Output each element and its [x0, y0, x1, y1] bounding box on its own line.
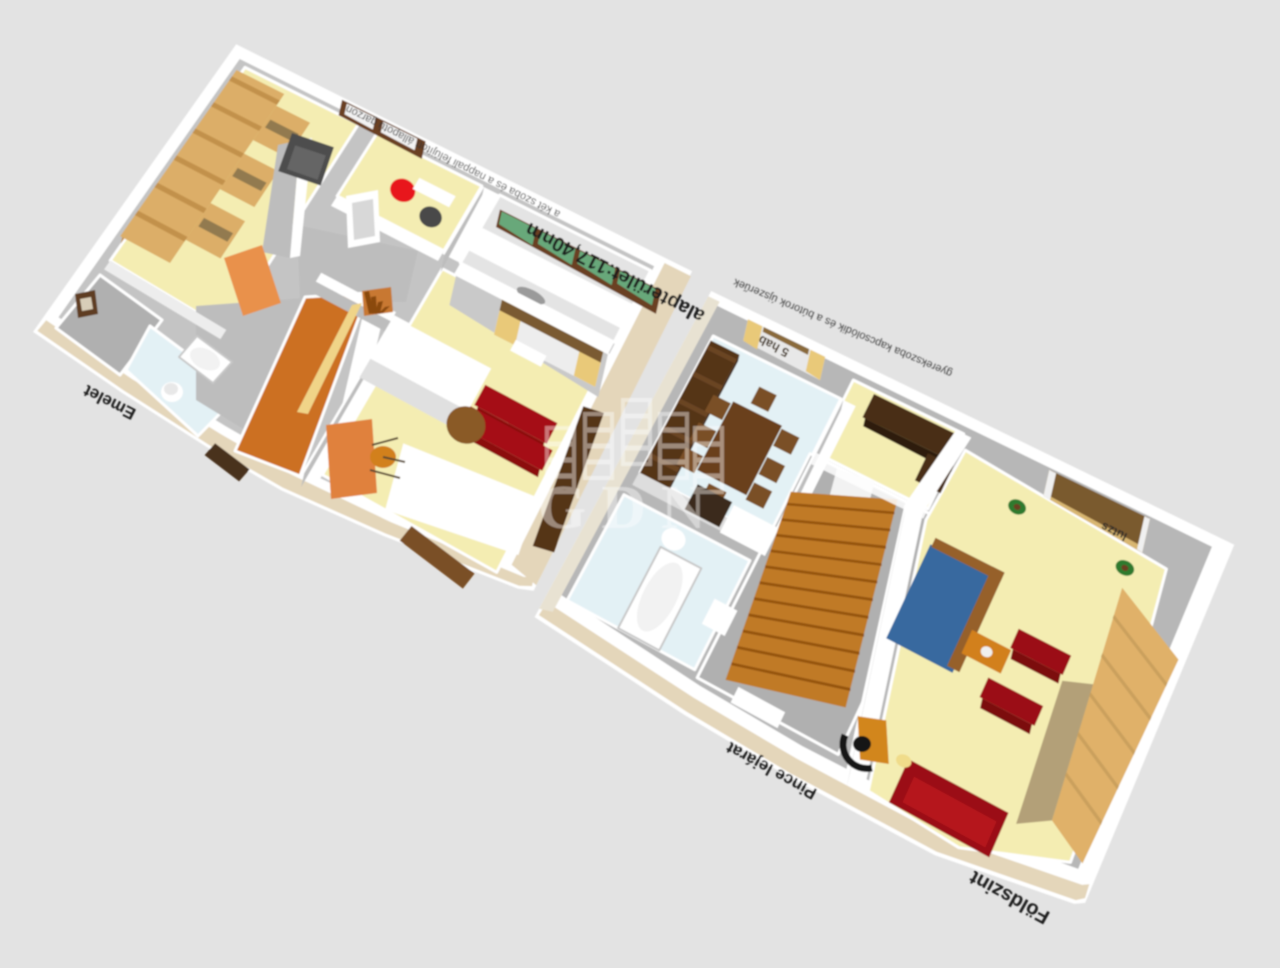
- svg-text:GDN: GDN: [538, 474, 721, 542]
